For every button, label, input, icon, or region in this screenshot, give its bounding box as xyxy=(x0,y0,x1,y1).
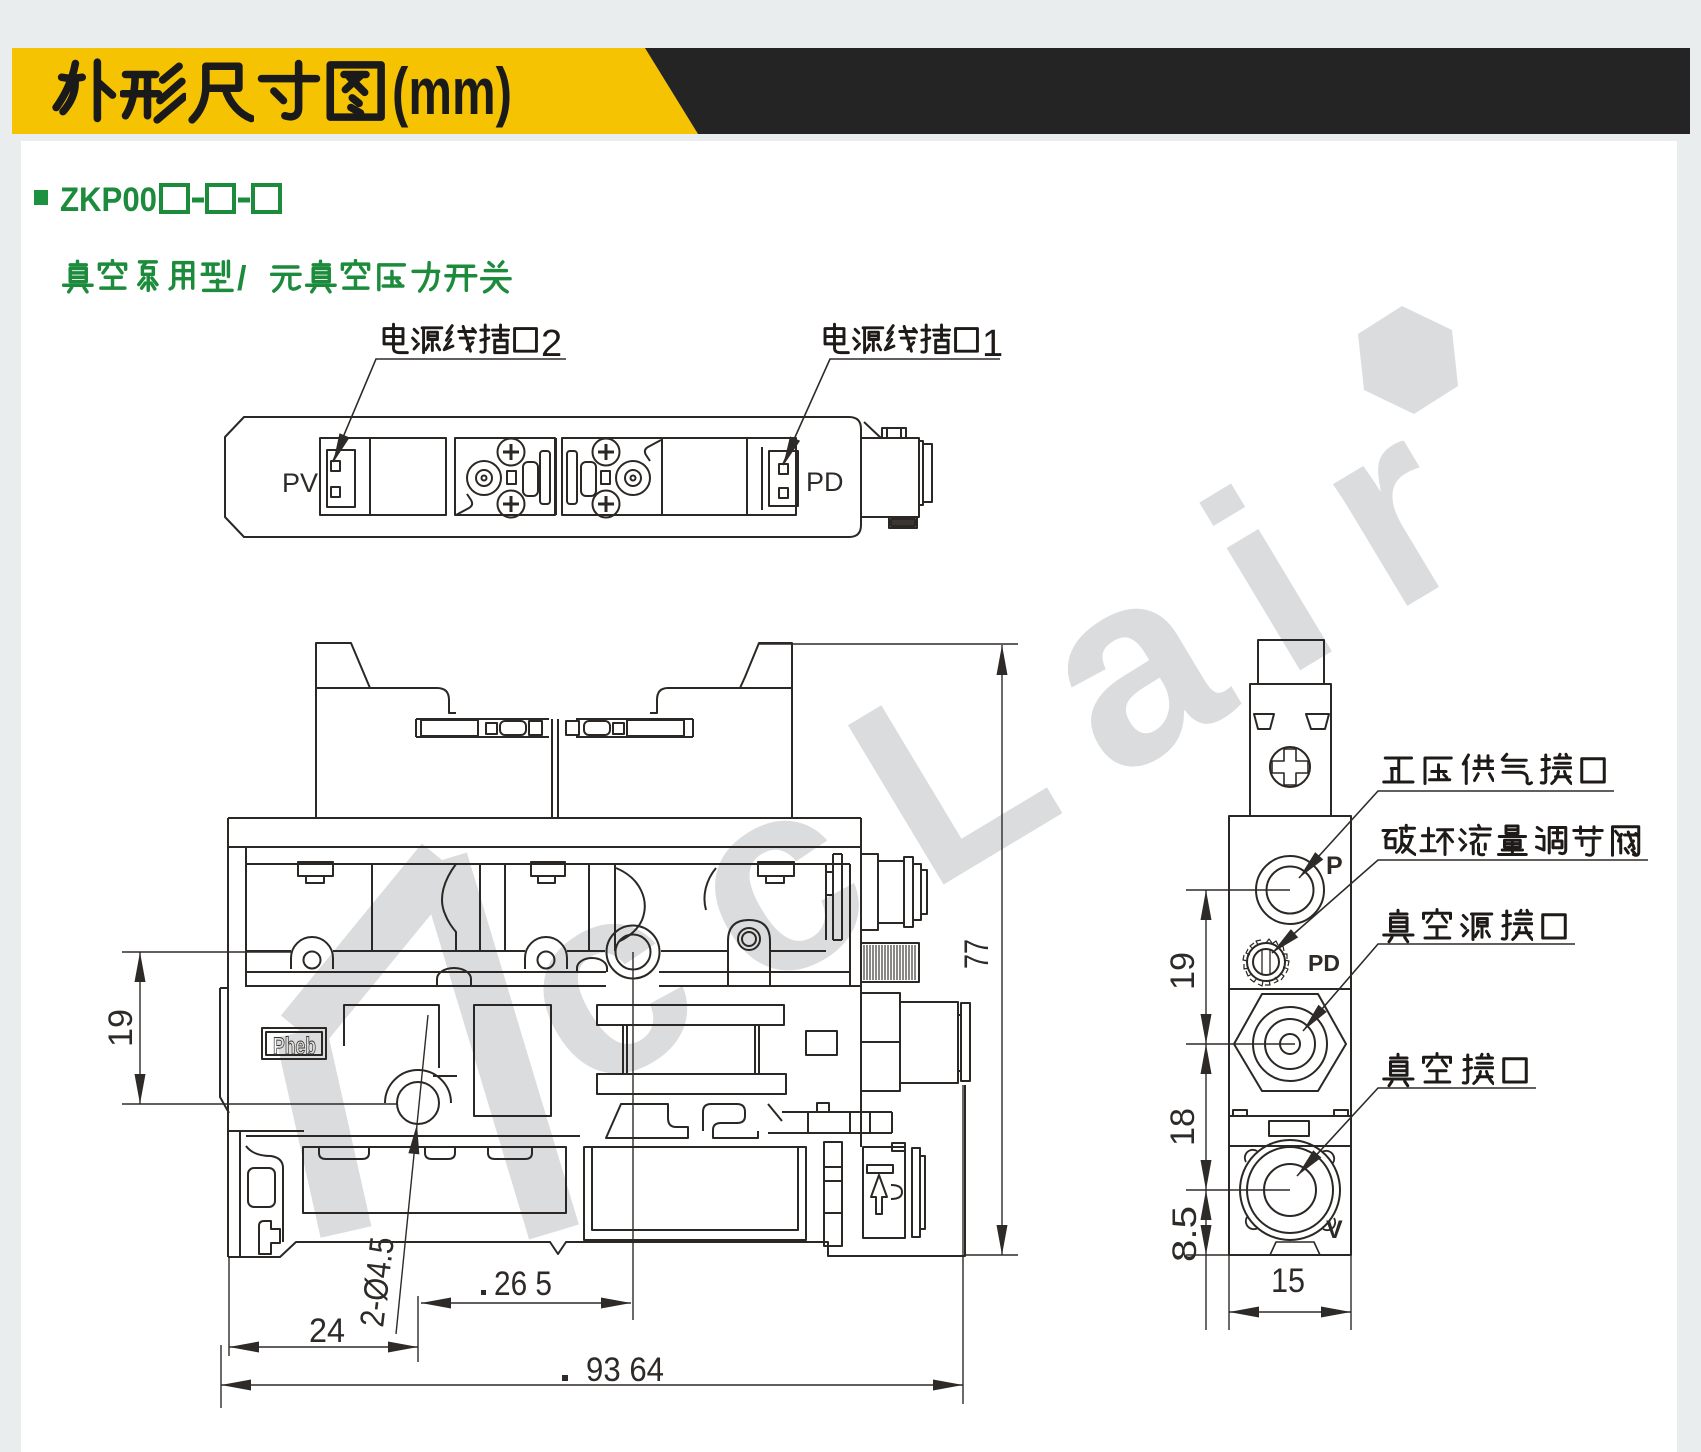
svg-text:(mm): (mm) xyxy=(392,54,512,128)
svg-text:18: 18 xyxy=(1164,1108,1202,1146)
svg-text:26 5: 26 5 xyxy=(494,1265,552,1303)
svg-text:15: 15 xyxy=(1271,1262,1305,1300)
svg-text:19: 19 xyxy=(1164,952,1202,990)
svg-text:Pheb: Pheb xyxy=(273,1033,316,1060)
svg-text:77: 77 xyxy=(958,939,996,969)
svg-text:19: 19 xyxy=(102,1009,140,1047)
svg-text:P: P xyxy=(1326,852,1343,880)
svg-text:V: V xyxy=(1326,1216,1343,1244)
svg-text:PV: PV xyxy=(282,468,318,498)
svg-text:/: / xyxy=(237,260,247,298)
svg-text:PD: PD xyxy=(1308,950,1340,976)
svg-text:8.5: 8.5 xyxy=(1166,1206,1204,1262)
svg-text:93 64: 93 64 xyxy=(586,1351,664,1389)
svg-text:24: 24 xyxy=(309,1312,345,1350)
svg-text:ZKP00: ZKP00 xyxy=(60,181,157,219)
svg-text:PD: PD xyxy=(806,467,844,497)
